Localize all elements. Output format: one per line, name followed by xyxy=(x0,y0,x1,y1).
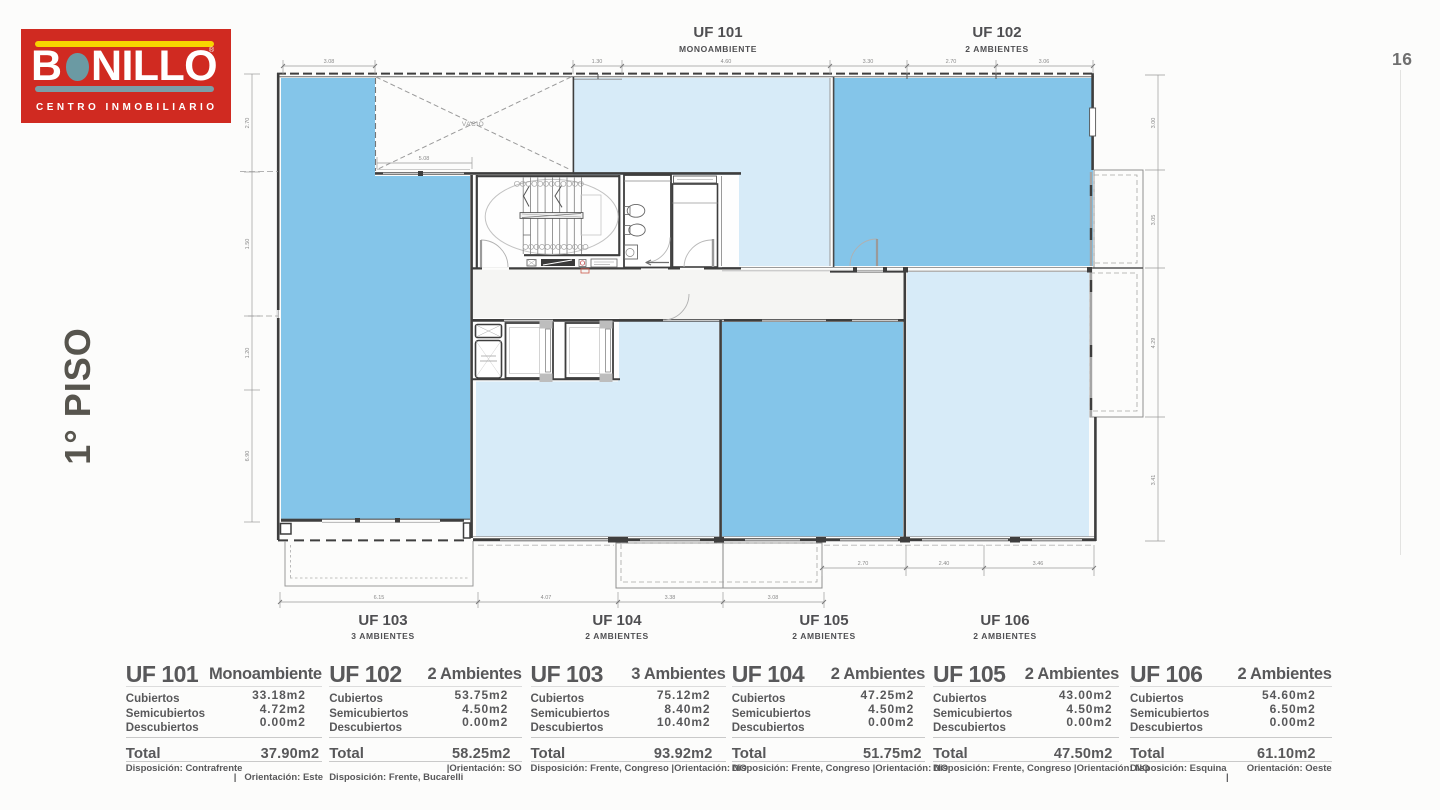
svg-text:2.70: 2.70 xyxy=(946,59,957,65)
svg-text:3.41: 3.41 xyxy=(1151,475,1157,486)
svg-text:5.08: 5.08 xyxy=(419,156,430,162)
svg-text:3.06: 3.06 xyxy=(1039,59,1050,65)
svg-text:4.29: 4.29 xyxy=(1151,338,1157,349)
svg-text:1.30: 1.30 xyxy=(592,59,603,65)
svg-text:3.08: 3.08 xyxy=(324,59,335,65)
svg-text:4.07: 4.07 xyxy=(541,595,552,601)
svg-text:1.20: 1.20 xyxy=(245,348,251,359)
svg-text:6.15: 6.15 xyxy=(374,595,385,601)
svg-text:3.30: 3.30 xyxy=(863,59,874,65)
svg-text:VACIO: VACIO xyxy=(462,121,484,128)
svg-text:3.38: 3.38 xyxy=(665,595,676,601)
svg-text:6.90: 6.90 xyxy=(245,451,251,462)
svg-text:3.00: 3.00 xyxy=(1151,118,1157,129)
svg-text:1.50: 1.50 xyxy=(245,239,251,250)
svg-text:2.70: 2.70 xyxy=(245,118,251,129)
svg-text:3.05: 3.05 xyxy=(1151,215,1157,226)
svg-text:3.46: 3.46 xyxy=(1033,561,1044,567)
svg-text:3.08: 3.08 xyxy=(768,595,779,601)
svg-text:2.40: 2.40 xyxy=(939,561,950,567)
svg-text:4.60: 4.60 xyxy=(721,59,732,65)
svg-text:2.70: 2.70 xyxy=(858,561,869,567)
